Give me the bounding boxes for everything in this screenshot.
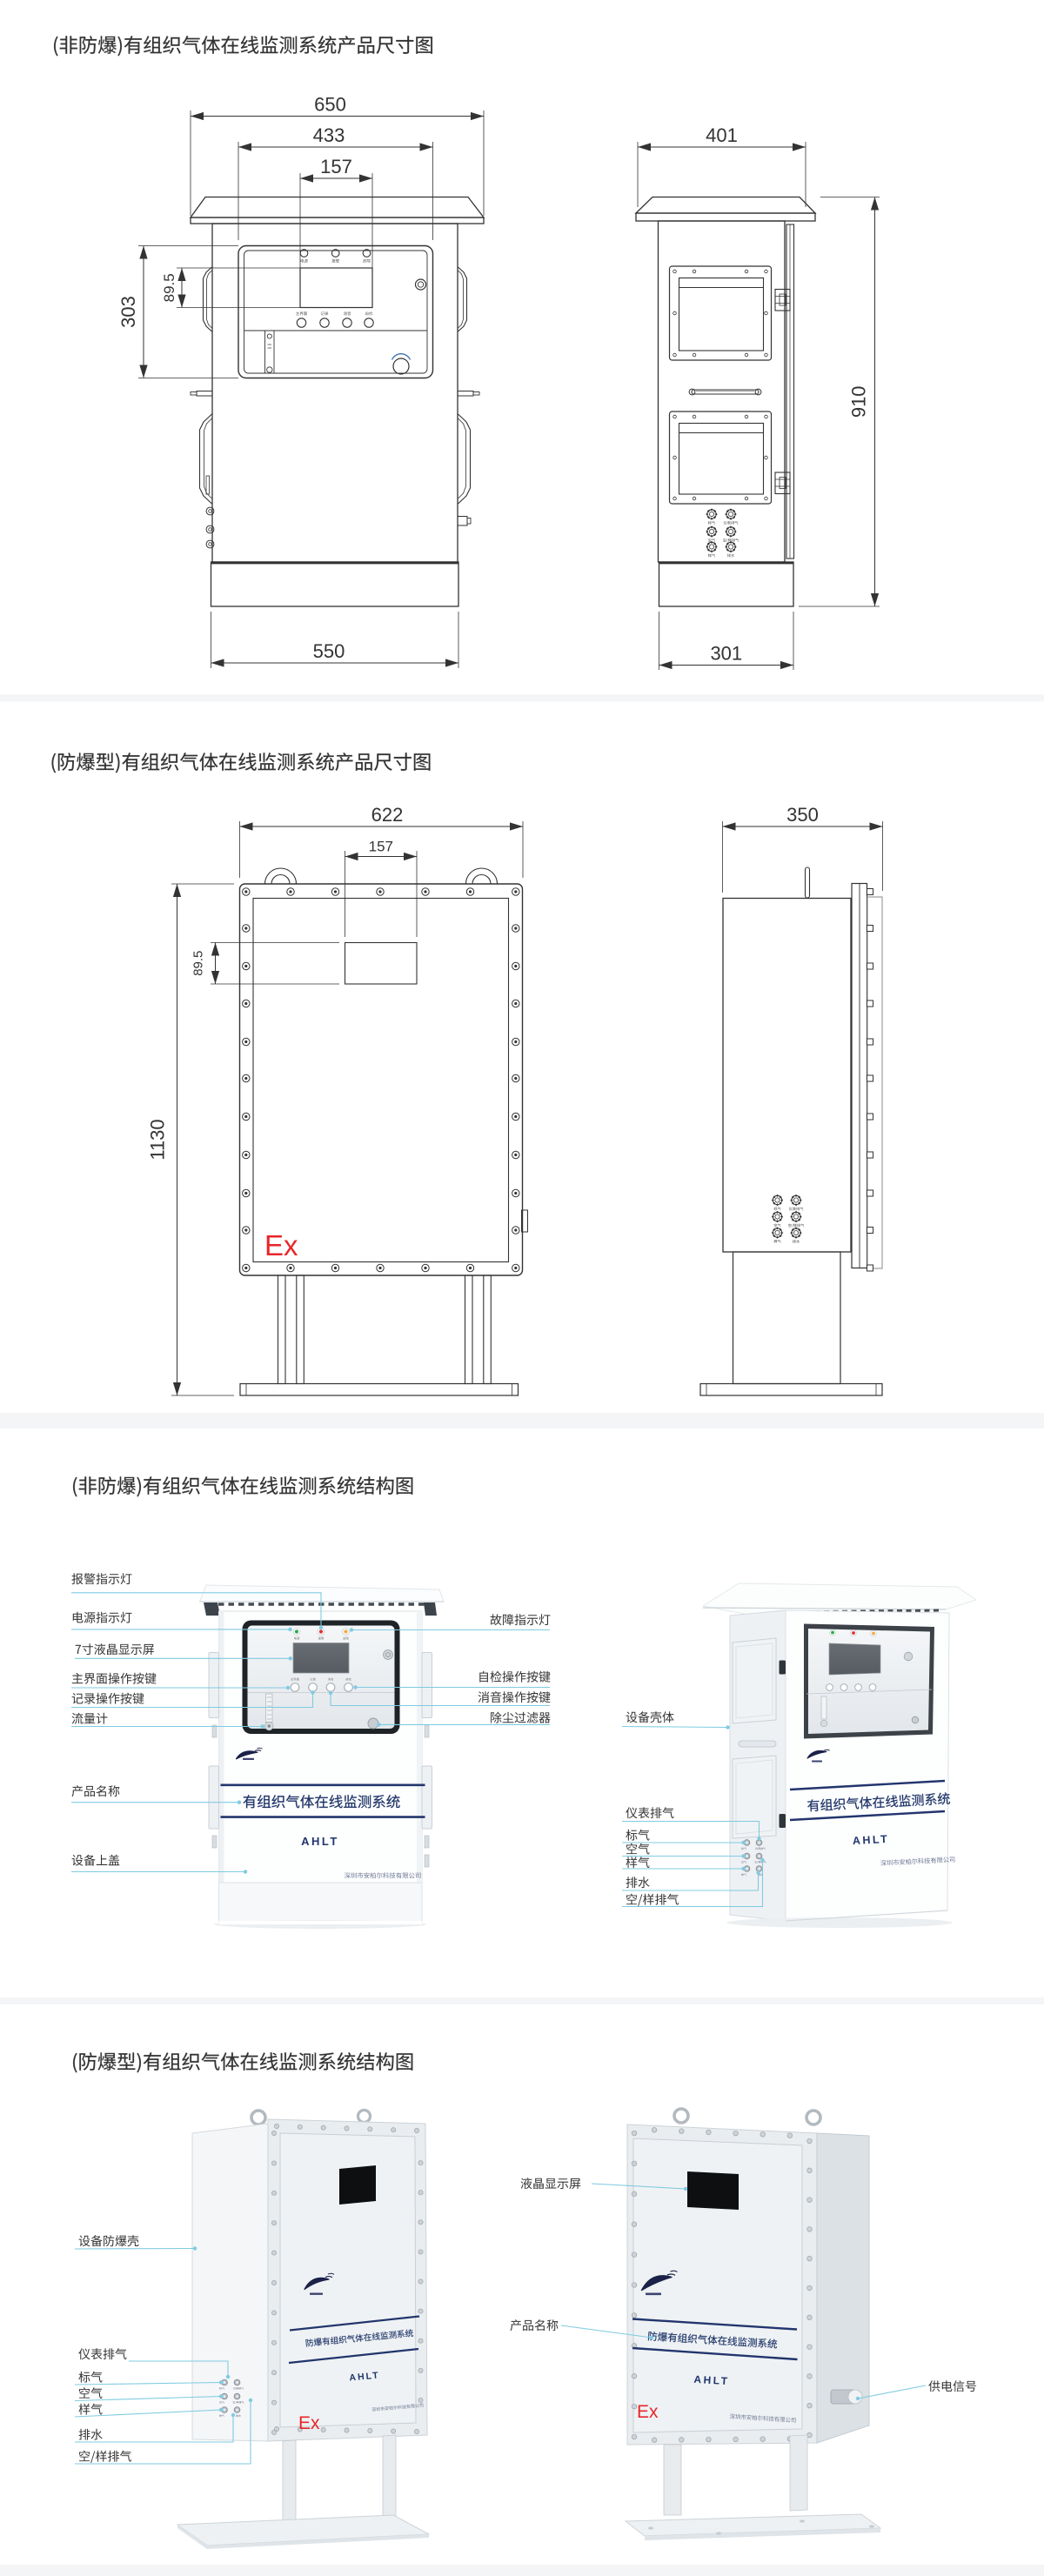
svg-text:157: 157	[320, 156, 352, 177]
svg-text:AHLT: AHLT	[301, 1835, 339, 1848]
svg-text:401: 401	[706, 124, 738, 146]
svg-text:Ex: Ex	[637, 2402, 659, 2422]
svg-text:AHLT: AHLT	[693, 2373, 730, 2387]
svg-text:1130: 1130	[147, 1119, 169, 1160]
svg-text:301: 301	[710, 643, 742, 665]
svg-text:89.5: 89.5	[161, 273, 177, 302]
svg-text:650: 650	[314, 94, 346, 116]
svg-text:433: 433	[313, 124, 345, 146]
svg-text:350: 350	[786, 804, 819, 826]
svg-text:Ex: Ex	[264, 1229, 298, 1261]
svg-text:Ex: Ex	[298, 2413, 320, 2433]
svg-text:550: 550	[313, 640, 345, 662]
svg-text:AHLT: AHLT	[853, 1833, 890, 1847]
svg-text:89.5: 89.5	[191, 951, 206, 976]
svg-text:622: 622	[371, 804, 404, 826]
svg-text:910: 910	[848, 385, 870, 418]
svg-text:157: 157	[369, 839, 393, 855]
svg-text:303: 303	[117, 296, 139, 328]
